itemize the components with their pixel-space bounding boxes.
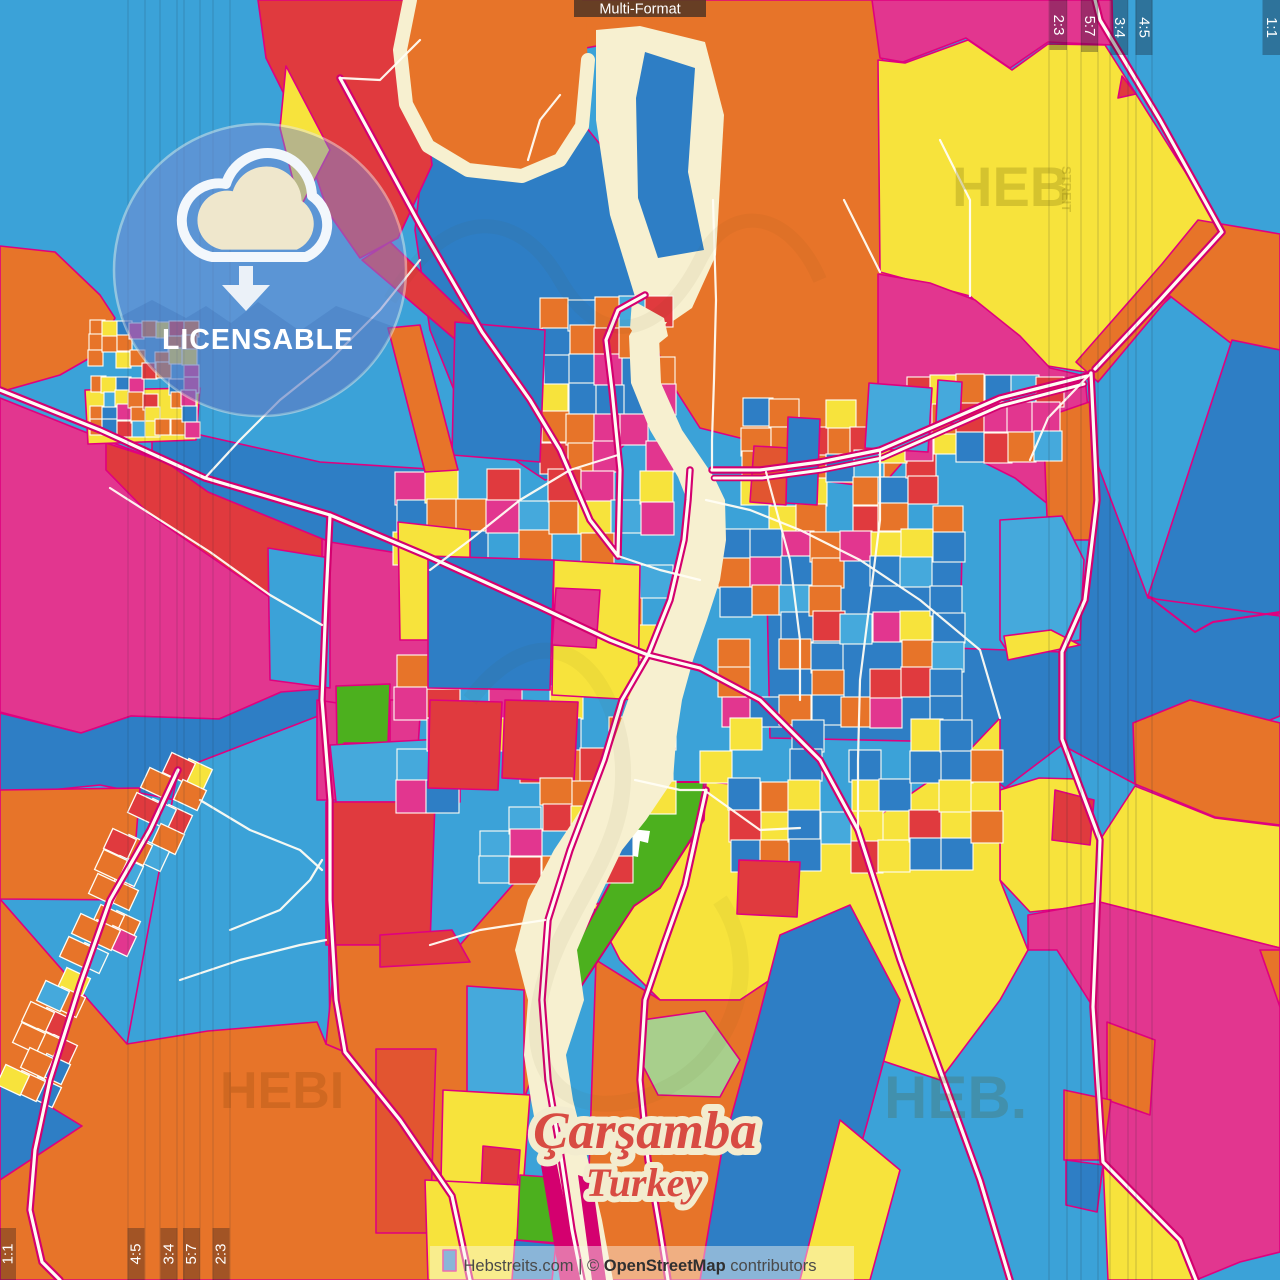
svg-text:LICENSABLE: LICENSABLE xyxy=(162,324,354,356)
svg-text:5:7: 5:7 xyxy=(1081,16,1098,37)
svg-text:Hebstreits.com | © OpenStreetM: Hebstreits.com | © OpenStreetMap contrib… xyxy=(464,1257,817,1275)
svg-text:Turkey: Turkey xyxy=(586,1160,703,1205)
svg-text:HEB: HEB xyxy=(952,155,1070,218)
svg-text:3:4: 3:4 xyxy=(161,1244,178,1265)
svg-text:STREIT: STREIT xyxy=(1059,166,1074,212)
svg-text:HEBI: HEBI xyxy=(220,1062,344,1120)
svg-text:3:4: 3:4 xyxy=(1111,17,1128,38)
svg-text:2:3: 2:3 xyxy=(213,1244,230,1265)
svg-text:4:5: 4:5 xyxy=(128,1244,145,1265)
svg-text:Multi-Format: Multi-Format xyxy=(599,2,680,18)
svg-text:HEB.: HEB. xyxy=(884,1064,1027,1131)
svg-text:Çarşamba: Çarşamba xyxy=(533,1102,757,1160)
svg-text:2:3: 2:3 xyxy=(1050,15,1067,36)
svg-text:1:1: 1:1 xyxy=(0,1244,17,1265)
svg-text:4:5: 4:5 xyxy=(1136,17,1153,38)
svg-text:1:1: 1:1 xyxy=(1263,17,1280,38)
svg-text:5:7: 5:7 xyxy=(183,1244,200,1265)
